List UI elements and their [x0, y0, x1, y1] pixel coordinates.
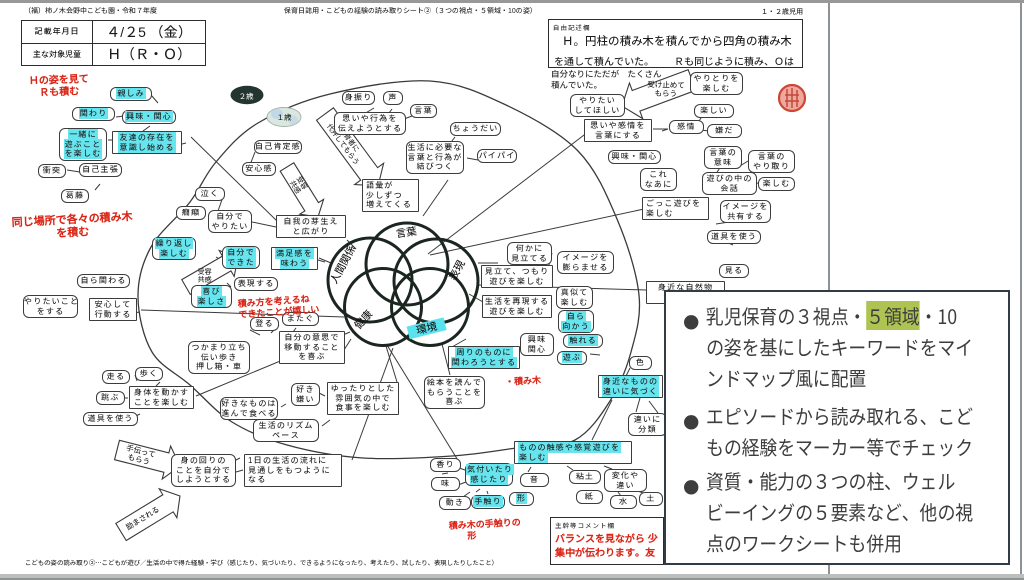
svg-text:言葉: 言葉: [395, 224, 418, 242]
svg-text:健康: 健康: [350, 307, 376, 333]
svg-text:２歳: ２歳: [239, 91, 254, 102]
svg-text:共感: 共感: [198, 275, 212, 285]
svg-text:１歳: １歳: [277, 112, 292, 123]
